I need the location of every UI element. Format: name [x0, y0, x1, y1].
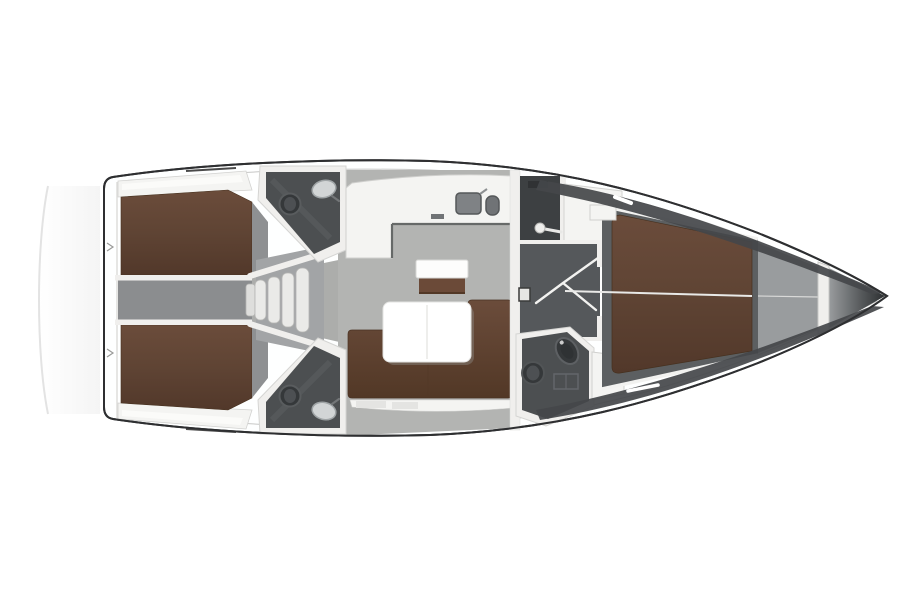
stern-shadow: [39, 186, 100, 414]
chart-seat-base: [419, 278, 465, 294]
engine-compartment: [118, 280, 260, 320]
chart-seat-top: [416, 260, 468, 278]
bed-aft-starboard: [121, 325, 252, 410]
step-4: [296, 268, 309, 332]
bed-aft-port: [121, 190, 252, 275]
shower-head-icon: [535, 223, 545, 233]
floorplan-svg: [0, 0, 900, 600]
sofa-locker-2: [392, 402, 418, 409]
engine-wall-bottom: [115, 320, 260, 324]
dinette-table: [383, 302, 474, 365]
aft-cabin-starboard: [115, 320, 268, 429]
electrical-panel: [519, 288, 530, 301]
toilet-aft-port-bowl: [284, 197, 296, 211]
galley-sink-main: [456, 193, 481, 214]
yacht-floorplan-canvas: [0, 0, 900, 600]
galley-sink-small: [486, 196, 499, 215]
step-3: [282, 273, 294, 327]
toilet-forward-bowl: [527, 366, 540, 381]
companionway-steps: [246, 246, 334, 354]
step-2: [268, 277, 280, 323]
step-landing: [246, 284, 255, 316]
toilet-aft-starboard-bowl: [284, 389, 296, 403]
corridor-wall-top: [518, 240, 602, 244]
chart-seat: [416, 260, 468, 294]
nightstand-forward: [590, 205, 616, 220]
aft-cabin-port: [115, 171, 268, 280]
sofa-locker-1: [356, 401, 386, 408]
engine-wall-top: [115, 277, 260, 281]
step-1: [255, 280, 266, 320]
galley-counter-detail: [431, 214, 444, 219]
corridor: [518, 240, 603, 341]
